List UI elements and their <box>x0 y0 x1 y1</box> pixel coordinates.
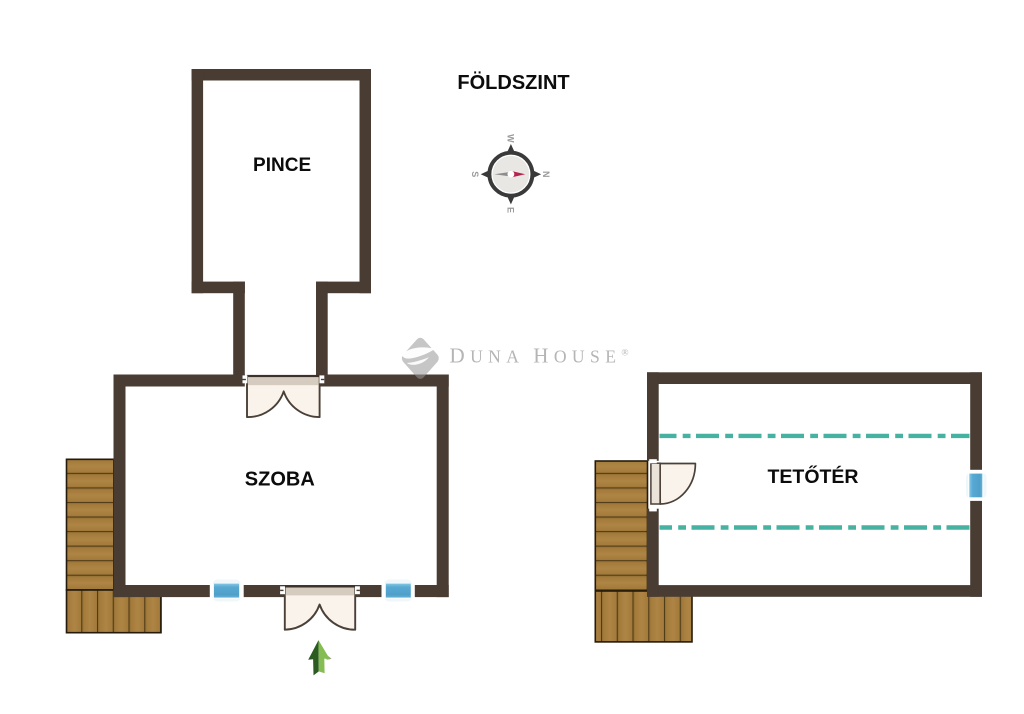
svg-text:S: S <box>470 171 480 177</box>
svg-text:N: N <box>541 171 551 178</box>
svg-text:FÖLDSZINT: FÖLDSZINT <box>457 71 569 94</box>
svg-text:TETŐTÉR: TETŐTÉR <box>768 465 859 488</box>
svg-text:DUNA HOUSE®: DUNA HOUSE® <box>450 343 629 367</box>
svg-text:E: E <box>506 207 516 213</box>
svg-text:W: W <box>506 134 516 143</box>
svg-text:SZOBA: SZOBA <box>245 469 315 491</box>
svg-text:PINCE: PINCE <box>253 155 311 176</box>
